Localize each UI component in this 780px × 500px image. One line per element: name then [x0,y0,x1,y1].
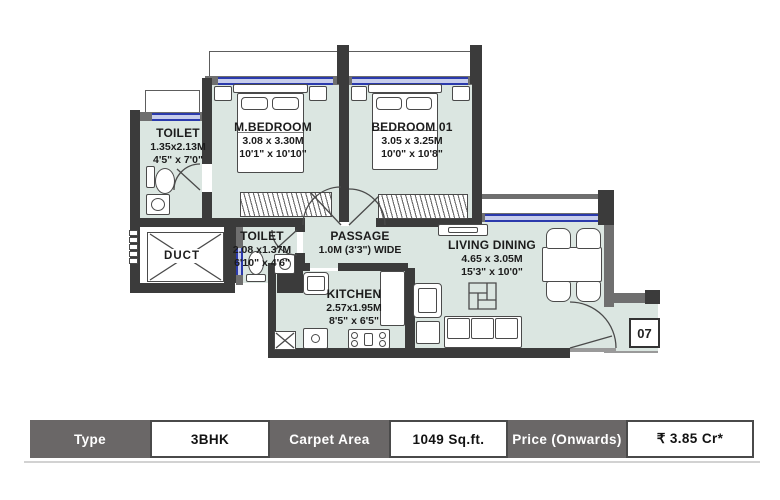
room-label-passage: PASSAGE 1.0M (3'3") WIDE [319,229,402,257]
sofa-seat [447,318,470,339]
floor-plan-page: M.BEDROOM 3.08 x 3.30M 10'1" x 10'10" BE… [0,0,780,500]
door-gap-fill [349,218,377,228]
room-name: PASSAGE [319,229,402,244]
meter-box [129,251,138,257]
room-label-toilet1: TOILET 1.35x2.13M 4'5" x 7'0" [150,126,205,167]
wall-segment [338,263,408,271]
room-label-kitchen: KITCHEN 2.57x1.95M 8'5" x 6'5" [326,287,381,328]
room-label-bedroom01: BEDROOM 01 3.05 x 3.25M 10'0" x 10'8" [371,120,452,161]
info-cell-carpet-value: 1049 Sq.ft. [389,420,508,458]
window-ledge [477,194,608,199]
dining-chair [576,228,601,249]
wall-segment [472,84,482,222]
armchair-seat [418,288,437,313]
column [470,45,482,84]
wall-segment [130,218,303,227]
fridge [380,271,405,326]
nightstand [309,86,327,101]
room-name: M.BEDROOM [234,120,312,135]
room-name: LIVING DINING [448,238,536,253]
pillow [241,97,268,110]
room-dim-m: 4.65 x 3.05M [448,253,536,266]
room-dim-ft: 10'0" x 10'8" [371,148,452,161]
info-cell-type-value: 3BHK [150,420,270,458]
burner-icon [351,340,358,347]
meter-box [129,244,138,250]
counter-basin-bowl [311,334,320,343]
wall-segment [295,218,305,232]
room-dim-m: 1.0M (3'3") WIDE [319,244,402,257]
living-window [485,214,598,222]
column [598,190,614,225]
burner-icon [379,332,386,339]
room-label-duct: DUCT [162,249,202,263]
room-dim-ft: 8'5" x 6'5" [326,315,381,328]
table-shadow-line [24,461,760,463]
side-table [416,321,440,344]
room-name: TOILET [150,126,205,141]
shaft-outline [145,90,200,113]
bed-headboard [233,84,308,93]
wall-segment [268,348,570,358]
wc-cistern-icon [246,274,266,282]
column [337,45,349,84]
nightstand [452,86,470,101]
info-table: Type 3BHK Carpet Area 1049 Sq.ft. Price … [30,420,754,458]
wc-icon [155,168,175,194]
burner-icon [379,340,386,347]
lobby-edge-line [604,351,658,353]
info-cell-price-label: Price (Onwards) [508,420,626,458]
nightstand [214,86,232,101]
pillow [406,97,432,110]
door-gap-fill [303,218,340,227]
room-dim-ft: 4'5" x 7'0" [150,154,205,167]
kitchen-sink-bowl [307,276,325,291]
wall-segment [130,283,235,293]
wardrobe [240,192,332,217]
room-dim-m: 1.35x2.13M [150,141,205,154]
wardrobe [378,194,468,219]
tv-icon [448,227,478,233]
room-name: TOILET [233,229,291,244]
pillow [376,97,402,110]
wc-cistern-icon [146,166,155,188]
dining-chair [546,281,571,302]
dining-chair [546,228,571,249]
info-cell-carpet-label: Carpet Area [270,420,389,458]
room-label-living-dining: LIVING DINING 4.65 x 3.05M 15'3" x 10'0" [448,238,536,279]
room-dim-m: 2.57x1.95M [326,302,381,315]
room-dim-m: 3.08 x 3.30M [234,135,312,148]
meter-box [129,230,138,236]
unit-number-badge: 07 [629,318,660,348]
meter-box [129,237,138,243]
info-cell-price-value: ₹ 3.85 Cr* [626,420,754,458]
room-name: DUCT [162,249,202,263]
room-dim-m: 3.05 x 3.25M [371,135,452,148]
washbasin-bowl-icon [151,198,165,211]
pillow [272,97,299,110]
wall-segment [339,84,349,222]
room-name: KITCHEN [326,287,381,302]
hob-center [364,333,373,346]
meter-box [129,258,138,264]
room-dim-ft: 6'10" x 4'6" [233,257,291,270]
nightstand [351,86,367,101]
kitchen-duct-box [274,331,296,350]
sofa-seat [471,318,494,339]
wall-segment [236,275,243,285]
room-dim-m: 2.08 x1.37M [233,244,291,257]
room-label-master-bedroom: M.BEDROOM 3.08 x 3.30M 10'1" x 10'10" [234,120,312,161]
bed-headboard [368,84,442,93]
room-dim-ft: 15'3" x 10'0" [448,266,536,279]
burner-icon [351,332,358,339]
room-name: BEDROOM 01 [371,120,452,135]
dining-table [542,247,602,282]
toilet1-window [152,113,200,121]
wall-segment [130,110,140,293]
column [645,290,660,304]
info-cell-type-label: Type [30,420,150,458]
room-dim-ft: 10'1" x 10'10" [234,148,312,161]
room-label-toilet2: TOILET 2.08 x1.37M 6'10" x 4'6" [233,229,291,270]
sofa-seat [495,318,518,339]
dining-chair [576,281,601,302]
unit-number: 07 [637,326,651,341]
